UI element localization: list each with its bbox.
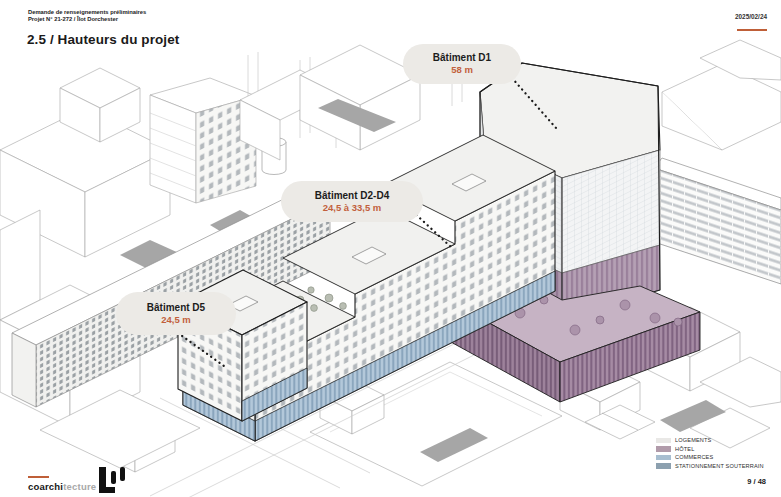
building-label-d1: Bâtiment D1 58 m — [403, 44, 521, 84]
legend-swatch-logements — [656, 438, 671, 444]
partner-logo-icon — [97, 466, 133, 494]
building-height: 24,5 à 33,5 m — [323, 202, 382, 214]
brand-bold: coarchi — [28, 481, 63, 492]
page-number: 9 / 48 — [747, 477, 766, 486]
date: 2025/02/24 — [735, 13, 767, 20]
document-header: Demande de renseignements préliminaires … — [28, 9, 146, 23]
legend-item-hotel: HÔTEL — [656, 445, 764, 454]
legend-label: COMMERCES — [675, 454, 713, 460]
legend-label: HÔTEL — [675, 446, 694, 452]
building-name: Bâtiment D1 — [433, 52, 491, 64]
legend-label: STATIONNEMENT SOUTERRAIN — [675, 463, 764, 469]
legend-item-stationnement: STATIONNEMENT SOUTERRAIN — [656, 462, 764, 471]
legend-label: LOGEMENTS — [675, 437, 711, 443]
building-label-d5: Bâtiment D5 24,5 m — [116, 292, 236, 335]
legend-swatch-hotel — [656, 446, 671, 452]
building-name: Bâtiment D2-D4 — [315, 190, 389, 202]
firm-logo-coarchitecture: coarchitecture — [28, 481, 96, 492]
legend-item-commerces: COMMERCES — [656, 453, 764, 462]
footer-accent-line — [28, 476, 49, 478]
header-line2: Projet N° 21-272 / Îlot Dorchester — [28, 16, 146, 23]
page-title: 2.5 / Hauteurs du projet — [27, 32, 179, 47]
building-label-d2-d4: Bâtiment D2-D4 24,5 à 33,5 m — [281, 181, 423, 222]
date-underline — [737, 29, 767, 31]
brand-light: tecture — [63, 481, 96, 492]
existing-striped-building — [654, 158, 781, 284]
axonometric-illustration — [0, 0, 781, 497]
legend-item-logements: LOGEMENTS — [656, 436, 764, 445]
building-name: Bâtiment D5 — [147, 302, 205, 314]
building-height: 24,5 m — [161, 314, 191, 326]
legend: LOGEMENTS HÔTEL COMMERCES STATIONNEMENT … — [656, 436, 764, 470]
legend-swatch-stationnement — [656, 463, 671, 469]
building-height: 58 m — [451, 64, 473, 76]
legend-swatch-commerces — [656, 455, 671, 461]
